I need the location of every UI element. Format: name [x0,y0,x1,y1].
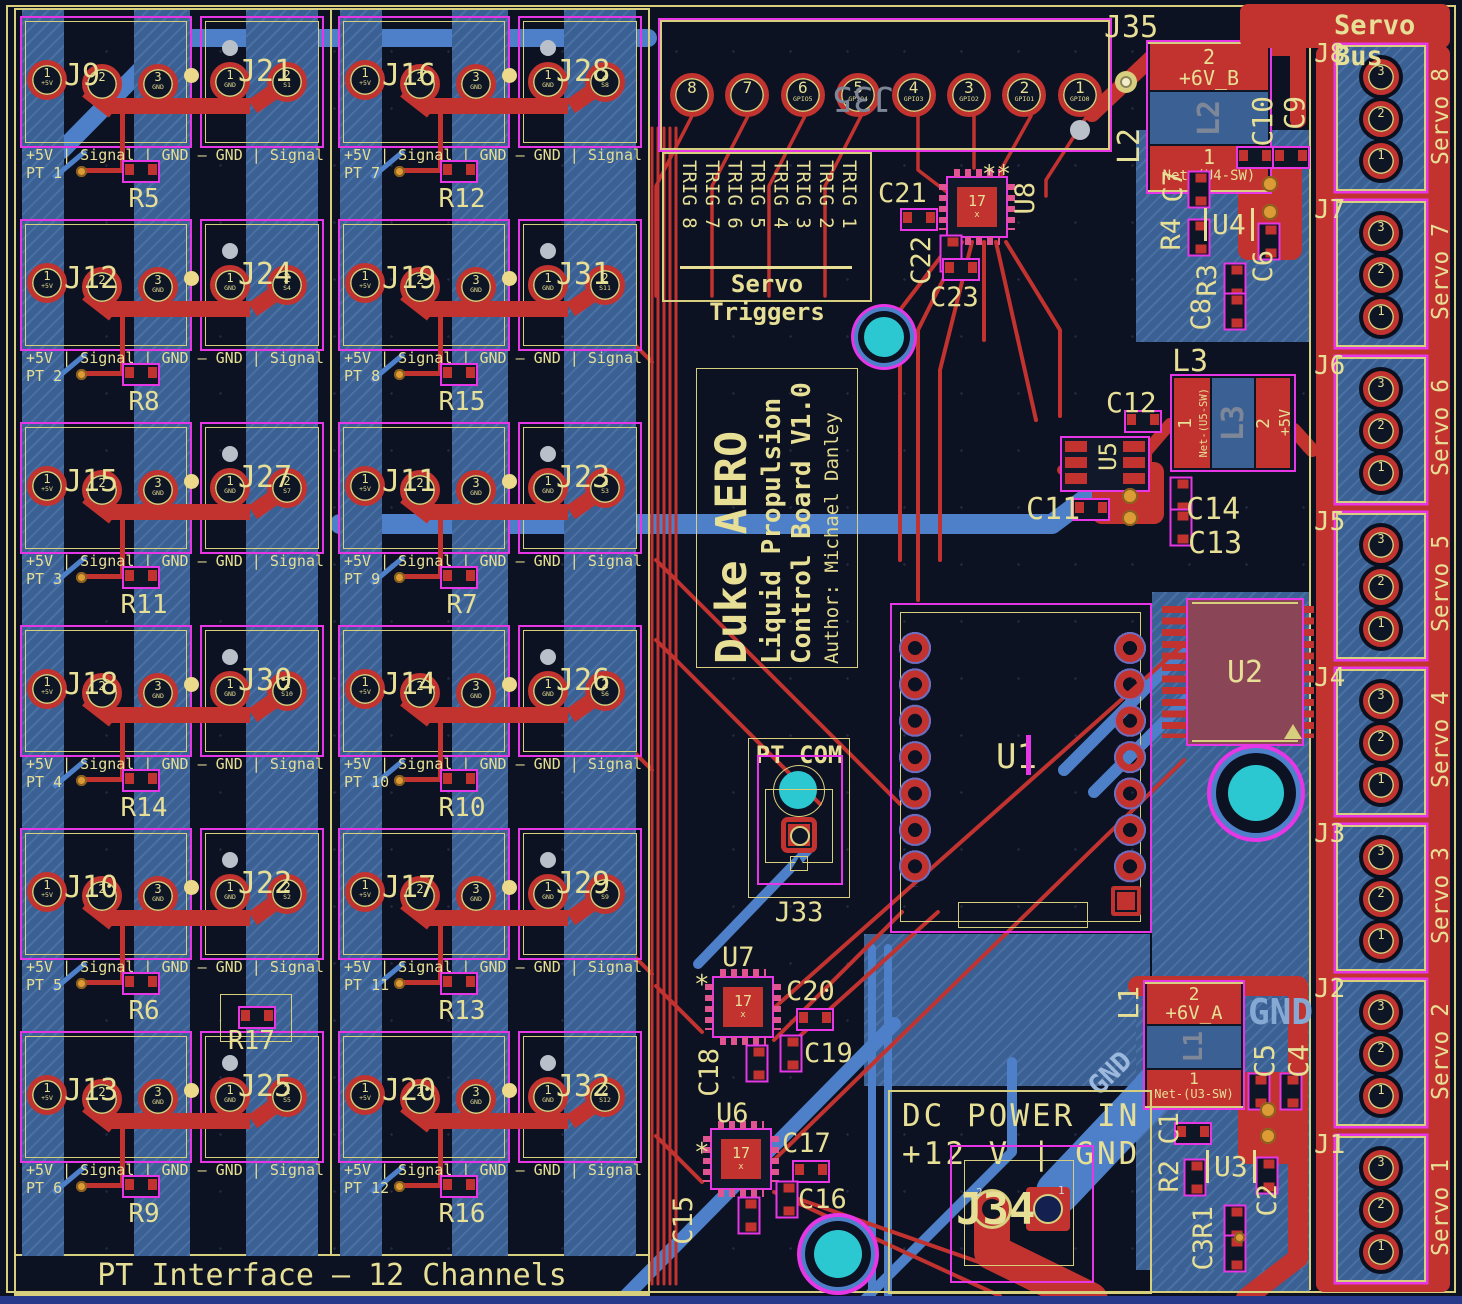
pad-signal[interactable]: 1 [1363,1234,1399,1270]
via [1122,488,1138,504]
pad-5v[interactable]: 1+5V [345,60,385,100]
via [1234,1232,1245,1243]
resistor-footprint[interactable] [122,1175,160,1198]
pad-gnd[interactable]: 3GND [456,673,496,713]
cap-ref[interactable]: C14 [1186,492,1240,527]
cap-ref[interactable]: C12 [1106,386,1157,419]
servo-connector[interactable]: J3 3 2 1 Servo 3 [1312,819,1462,969]
header-pad[interactable]: 3GPIO2 [947,73,991,117]
channel-label[interactable]: PT 12 [344,1179,389,1197]
trig-label[interactable]: TRIG 7 [701,160,723,264]
pad-5v[interactable]: 1+5V [27,872,67,912]
channel-label[interactable]: PT 8 [344,367,380,385]
pad-gnd[interactable]: 3 [1363,1150,1399,1186]
pad-signal[interactable]: 1 [1363,923,1399,959]
cap-ref[interactable]: C4 [1282,1044,1315,1078]
pad-gnd[interactable]: 3 [1363,371,1399,407]
cap-ref[interactable]: C22 [906,236,937,285]
resistor-footprint[interactable] [440,1175,478,1198]
connector-ref[interactable]: J15 [64,464,118,499]
connector-ref[interactable]: J12 [64,261,118,296]
pad-5v[interactable]: 1+5V [27,60,67,100]
servo-bus-title[interactable]: Servo Bus [1334,10,1462,72]
resistor-footprint[interactable] [440,566,478,589]
cap-footprint[interactable] [746,1045,769,1083]
trigger-header-connector[interactable]: 8 7 6GPIO5 5GPIO4 4GPIO3 3GPIO2 2GPIO1 1… [660,20,1110,150]
res-ref[interactable]: R1 [1188,1206,1219,1239]
silk-dot [540,40,556,56]
pt-channel-row[interactable]: 1+5V 2 3GND 1GND 2S10 J18 J30 +5V | Sign… [16,623,330,826]
pad-gnd[interactable]: 3GND [456,64,496,104]
channel-label[interactable]: PT 5 [26,976,62,994]
cap-ref[interactable]: C19 [804,1038,853,1069]
connector-body[interactable]: 3 2 1 [1336,1136,1426,1282]
servo-connector[interactable]: J5 3 2 1 Servo 5 [1312,507,1462,657]
pad-gnd[interactable]: 3 [1363,994,1399,1030]
resistor-footprint[interactable] [440,972,478,995]
pad-power[interactable]: 2 [1363,101,1399,137]
connector-ref[interactable]: J7 [1314,195,1345,225]
servo-label[interactable]: Servo 2 [1428,982,1454,1120]
servo-connector[interactable]: J1 3 2 1 Servo 1 [1312,1130,1462,1280]
resistor-ref[interactable]: R13 [420,996,504,1026]
resistor-ref[interactable]: R5 [102,184,186,214]
via-dot [502,880,517,895]
servo-triggers-title[interactable]: Servo Triggers [668,270,866,326]
chip-u7[interactable]: 17x [712,976,774,1038]
connector-ref[interactable]: J29 [556,866,610,901]
pt-channel-row[interactable]: 1+5V 2 3GND 1GND 2S3 J11 J23 +5V | Signa… [334,420,648,623]
board-title-block[interactable]: Duke AERO Liquid Propulsion Control Boar… [696,368,858,668]
silk-dot [222,446,238,462]
trace [84,168,124,173]
connector-body[interactable]: 3 2 1 [1336,357,1426,503]
trig-label[interactable]: TRIG 5 [747,160,769,264]
pinout-label[interactable]: +5V | Signal | GND – GND | Signal [344,958,642,976]
via [1122,510,1138,526]
pad-gnd[interactable]: 3GND [456,876,496,916]
pad-signal[interactable]: 1 [1363,455,1399,491]
connector-ref[interactable]: J16 [382,58,436,93]
pad-power[interactable]: 2 [1363,725,1399,761]
silk-dot [222,852,238,868]
channel-label[interactable]: PT 11 [344,976,389,994]
silk-dot [540,243,556,259]
connector-ref[interactable]: J31 [556,257,610,292]
trig-label[interactable]: TRIG 8 [678,160,700,264]
via [394,369,405,380]
inductor-ref[interactable]: L2 [1112,128,1147,164]
pad-gnd[interactable]: 3GND [138,267,178,307]
pt-channel-row[interactable]: 1+5V 2 3GND 1GND 2S1 J9 J21 +5V | Signal… [16,14,330,217]
resistor-footprint[interactable] [440,363,478,386]
silk-triangle [791,857,807,870]
pad-gnd[interactable]: 3GND [138,673,178,713]
resistor-footprint[interactable] [440,160,478,183]
silk-dot [540,446,556,462]
chip-ref: U5 [1094,442,1122,471]
via-dot [184,1083,199,1098]
cap-footprint[interactable] [780,1035,803,1073]
via-dot [184,271,199,286]
resistor-ref[interactable]: R6 [102,996,186,1026]
connector-ref[interactable]: J30 [238,663,292,698]
trig-label[interactable]: TRIG 6 [724,160,746,264]
connector-ref[interactable]: J3 [1314,819,1345,849]
servo-bus-region: Servo Bus J8 3 2 1 Servo 8 J7 3 2 1 Serv… [1312,0,1462,1304]
pt-com-connector[interactable]: PT COM J33 [748,738,850,898]
cap-ref[interactable]: C6 [1248,250,1279,283]
connector-ref[interactable]: J2 [1314,974,1345,1004]
pt-channel-row[interactable]: 1+5V 2 3GND 1GND 2S11 J19 J31 +5V | Sign… [334,217,648,420]
resistor-footprint[interactable] [122,769,160,792]
chip-ref[interactable]: U6 [716,1098,749,1129]
connector-ref[interactable]: J18 [64,667,118,702]
inductor-l3[interactable]: 1Net-(U5-SW) L3 2+5V [1170,374,1296,472]
connector-ref[interactable]: J20 [382,1073,436,1108]
pad-signal[interactable]: 1 [1363,767,1399,803]
pinout-label[interactable]: +5V | Signal | GND – GND | Signal [26,755,324,773]
cap-ref[interactable]: C16 [798,1184,847,1215]
pad-power[interactable]: 2 [1363,413,1399,449]
mounting-hole[interactable] [864,317,904,357]
cap-footprint[interactable] [900,208,938,231]
pad-gnd[interactable]: 3GND [138,64,178,104]
chip-u5[interactable]: U5 [1060,436,1150,492]
silk-notch [958,902,1088,928]
trig-label[interactable]: TRIG 2 [815,160,837,264]
trace [84,371,124,376]
channel-label[interactable]: PT 1 [26,164,62,182]
pad-power[interactable]: 2 [1363,257,1399,293]
pinout-label[interactable]: +5V | Signal | GND – GND | Signal [26,349,324,367]
trig-label[interactable]: TRIG 3 [792,160,814,264]
resistor-ref[interactable]: R8 [102,387,186,417]
pad-signal[interactable]: 1 [1363,1078,1399,1114]
chip-ref[interactable]: U4 [1204,208,1254,241]
pt-channel-row[interactable]: 1+5V 2 3GND 1GND 2S4 J12 J24 +5V | Signa… [16,217,330,420]
header-pad[interactable]: 4GPIO3 [892,73,936,117]
pad-gnd[interactable]: 3GND [138,1079,178,1119]
cap-ref[interactable]: C7 [1158,170,1189,203]
cap-ref[interactable]: C3 [1188,1238,1219,1271]
connector-ref[interactable]: J35 [1104,10,1158,45]
connector-ref[interactable]: J27 [238,460,292,495]
trig-label[interactable]: TRIG 1 [838,160,860,264]
connector-ref[interactable]: J8 [1314,39,1345,69]
pt-channel-row[interactable]: 1+5V 2 3GND 1GND 2S9 J17 J29 +5V | Signa… [334,826,648,1029]
cap-ref[interactable]: C5 [1248,1044,1281,1078]
cap-ref[interactable]: C23 [930,282,979,313]
pinout-label[interactable]: +5V | Signal | GND – GND | Signal [26,958,324,976]
via-dot [184,677,199,692]
channel-label[interactable]: PT 9 [344,570,380,588]
pinout-label[interactable]: +5V | Signal | GND – GND | Signal [26,552,324,570]
via-dot [502,677,517,692]
via [394,978,405,989]
cap-footprint[interactable] [1280,1073,1303,1111]
channel-label[interactable]: PT 3 [26,570,62,588]
pad-gnd[interactable]: 3 [1363,683,1399,719]
header-pad[interactable]: 2GPIO1 [1002,73,1046,117]
resistor-ref[interactable]: R15 [420,387,504,417]
connector-body[interactable]: 3 2 1 [1336,980,1426,1126]
pad-gnd[interactable]: 3 [1363,215,1399,251]
servo-label[interactable]: Servo 7 [1428,203,1454,341]
cap-footprint[interactable] [1272,146,1310,169]
cap-footprint[interactable] [942,258,980,281]
res-ref[interactable]: R4 [1156,218,1187,251]
pad-gnd[interactable]: 3GND [138,876,178,916]
res-ref[interactable]: R3 [1192,264,1223,297]
mounting-hole[interactable] [1228,765,1284,821]
connector-ref[interactable]: J6 [1314,351,1345,381]
pad-signal[interactable]: 1 [1363,611,1399,647]
cap-ref[interactable]: C8 [1186,298,1217,331]
pad-gnd[interactable]: 3GND [456,267,496,307]
cap-footprint[interactable] [1236,146,1274,169]
connector-ref[interactable]: J4 [1314,663,1345,693]
resistor-ref[interactable]: R11 [102,590,186,620]
resistor-footprint[interactable] [122,363,160,386]
pad-5v[interactable]: 1+5V [27,669,67,709]
chip-ref: U2 [1227,655,1263,690]
trace [402,1183,442,1188]
resistor-footprint[interactable] [122,160,160,183]
connector-ref[interactable]: J14 [382,667,436,702]
connector-ref[interactable]: J25 [238,1069,292,1104]
via [76,572,87,583]
pad-5v[interactable]: 1+5V [345,263,385,303]
connector-ref[interactable]: J24 [238,257,292,292]
pinout-label[interactable]: +5V | Signal | GND – GND | Signal [344,1161,642,1179]
resistor-ref[interactable]: R10 [420,793,504,823]
connector-ref[interactable]: J13 [64,1073,118,1108]
pad-5v[interactable]: 1+5V [27,466,67,506]
pad-signal[interactable]: 1 [1363,299,1399,335]
connector-body[interactable]: 3 2 1 [1336,825,1426,971]
cap-ref[interactable]: C20 [786,976,835,1007]
trigger-legend-box: TRIG 8TRIG 7TRIG 6TRIG 5TRIG 4TRIG 3TRIG… [662,152,872,302]
silk-marks: ** [982,160,1011,188]
channel-label[interactable]: PT 6 [26,1179,62,1197]
resistor-footprint[interactable] [440,769,478,792]
resistor-ref[interactable]: R7 [420,590,504,620]
mounting-hole[interactable] [814,1230,862,1278]
cap-footprint[interactable] [1188,171,1211,209]
connector-ref[interactable]: J19 [382,261,436,296]
via [1260,1128,1276,1144]
connector-ref[interactable]: J28 [556,54,610,89]
channel-label[interactable]: PT 10 [344,773,389,791]
gnd-zone-label[interactable]: GND [1248,992,1313,1033]
connector-ref[interactable]: J9 [64,58,100,93]
connector-ref[interactable]: J21 [238,54,292,89]
board-bottom-edge [0,1296,1462,1304]
servo-connector[interactable]: J7 3 2 1 Servo 7 [1312,195,1462,345]
cap-ref[interactable]: C17 [782,1128,831,1159]
connector-ref[interactable]: J23 [556,460,610,495]
servo-label[interactable]: Servo 3 [1428,827,1454,965]
cap-ref[interactable]: C11 [1026,492,1080,527]
inductor-l1[interactable]: 2+6V_A L1 1Net-(U3-SW) [1143,980,1245,1110]
resistor-ref[interactable]: R14 [102,793,186,823]
pad-signal[interactable]: 1 [1363,143,1399,179]
pinout-label[interactable]: +5V | Signal | GND – GND | Signal [26,1161,324,1179]
connector-ref[interactable]: J11 [382,464,436,499]
pad-gnd[interactable]: 3GND [138,470,178,510]
inductor-ref[interactable]: L3 [1172,344,1208,379]
connector-ref[interactable]: J26 [556,663,610,698]
channel-label[interactable]: PT 7 [344,164,380,182]
chip-ref[interactable]: U8 [1010,182,1041,222]
connector-body[interactable]: 3 2 1 [1336,669,1426,815]
trace [84,980,124,985]
trace [402,980,442,985]
board-author[interactable]: Author: Michael Danley [817,372,847,664]
connector-body[interactable]: 3 2 1 [1336,513,1426,659]
pt-column-divider [330,8,332,1254]
servo-label[interactable]: Servo 6 [1428,359,1454,497]
connector-ref[interactable]: J22 [238,866,292,901]
pad-5v[interactable]: 1+5V [27,1075,67,1115]
pt-channel-row[interactable]: 1+5V 2 3GND 1GND 2S12 J20 J32 +5V | Sign… [334,1029,648,1232]
cap-ref[interactable]: C21 [878,178,927,209]
trig-label[interactable]: TRIG 4 [769,160,791,264]
via-ring [1120,76,1132,88]
servo-label[interactable]: Servo 1 [1428,1138,1454,1276]
pad-gnd[interactable]: 3 [1363,839,1399,875]
via-dot [502,474,517,489]
silk-mark: * [694,970,710,1000]
pad-square[interactable] [1111,886,1141,916]
silk-rule [680,266,852,269]
board-subtitle[interactable]: Liquid Propulsion [757,372,787,664]
dc-power-title[interactable]: DC POWER IN [902,1098,1140,1134]
pad-gnd[interactable]: 3 [1363,527,1399,563]
silk-dot [222,1055,238,1071]
cap-footprint[interactable] [1224,293,1247,331]
connector-ref[interactable]: J10 [64,870,118,905]
via [76,369,87,380]
cap-ref[interactable]: C9 [1278,96,1311,130]
channel-label[interactable]: PT 2 [26,367,62,385]
connector-pad[interactable] [781,817,817,853]
resistor-ref[interactable]: R16 [420,1199,504,1229]
pt-channel-row[interactable]: 1+5V 2 3GND 1GND 2S6 J14 J26 +5V | Signa… [334,623,648,826]
pad-5v[interactable]: 1+5V [345,466,385,506]
pt-channel-row[interactable]: 1+5V 2 3GND 1GND 2S8 J16 J28 +5V | Signa… [334,14,648,217]
via [394,572,405,583]
silk-triangle [1284,724,1302,739]
pinout-label[interactable]: +5V | Signal | GND – GND | Signal [344,755,642,773]
pad-power[interactable]: 2 [1363,881,1399,917]
pt-channel-row[interactable]: 1+5V 2 3GND 1GND 2S5 J13 J25 +5V | Signa… [16,1029,330,1232]
header-pad[interactable]: 1GPIO0 [1058,73,1102,117]
silk-dot [222,40,238,56]
pt-interface-title[interactable]: PT Interface — 12 Channels [14,1254,650,1296]
pcb-canvas: PT Interface — 12 Channels 1+5V 2 3GND 1… [0,0,1462,1304]
pt-channel-row[interactable]: 1+5V 2 3GND 1GND 2S7 J15 J27 +5V | Signa… [16,420,330,623]
pinout-label[interactable]: +5V | Signal | GND – GND | Signal [344,349,642,367]
cap-footprint[interactable] [738,1197,761,1235]
inductor-ref[interactable]: L1 [1112,986,1145,1020]
connector-ref[interactable]: J1 [1314,1130,1345,1160]
servo-connector[interactable]: J4 3 2 1 Servo 4 [1312,663,1462,813]
trace [402,371,442,376]
cap-ref[interactable]: C15 [668,1196,699,1245]
pinout-label[interactable]: +5V | Signal | GND – GND | Signal [344,146,642,164]
silk-dot [222,243,238,259]
via [1262,176,1278,192]
servo-label[interactable]: Servo 4 [1428,671,1454,809]
pad-5v[interactable]: 1+5V [345,1075,385,1115]
pad-power[interactable]: 2 [1363,569,1399,605]
channel-label[interactable]: PT 4 [26,773,62,791]
res-ref[interactable]: R2 [1154,1160,1185,1193]
cap-ref[interactable]: C1 [1154,1112,1185,1145]
header-pad[interactable]: 8 [670,73,714,117]
resistor-footprint[interactable] [122,566,160,589]
resistor-ref[interactable]: R12 [420,184,504,214]
trace [402,574,442,579]
resistor-footprint[interactable] [122,972,160,995]
header-pad[interactable]: 7 [725,73,769,117]
cap-ref[interactable]: C18 [694,1048,725,1097]
connector-ref[interactable]: J34 [956,1184,1035,1235]
pad-5v[interactable]: 1+5V [27,263,67,303]
chip-ref[interactable]: U3 [1206,1150,1256,1183]
connector-ref[interactable]: J32 [556,1069,610,1104]
chip-ref[interactable]: U7 [722,942,755,973]
connector-ref[interactable]: J5 [1314,507,1345,537]
connector-body[interactable]: 3 2 1 [1336,201,1426,347]
resistor-ref[interactable]: R9 [102,1199,186,1229]
pad-power[interactable]: 2 [1363,1192,1399,1228]
header-pad[interactable]: 6GPIO5 [781,73,825,117]
pad-gnd[interactable]: 3GND [456,1079,496,1119]
via [394,166,405,177]
board-subtitle2[interactable]: Control Board V1.0 [787,372,817,664]
cap-footprint[interactable] [776,1181,799,1219]
servo-connector[interactable]: J6 3 2 1 Servo 6 [1312,351,1462,501]
silk-mark: * [694,1138,710,1168]
pinout-label[interactable]: +5V | Signal | GND – GND | Signal [26,146,324,164]
servo-label[interactable]: Servo 5 [1428,515,1454,653]
cap-ref[interactable]: C13 [1188,526,1242,561]
resistor-ref[interactable]: R17 [228,1026,275,1056]
connector-ref[interactable]: J33 [749,897,849,928]
pad-power[interactable]: 2 [1363,1036,1399,1072]
servo-connector[interactable]: J2 3 2 1 Servo 2 [1312,974,1462,1124]
cap-footprint[interactable] [796,1008,834,1031]
via [1260,1102,1276,1118]
cap-ref[interactable]: C10 [1246,96,1279,147]
via [76,775,87,786]
res-footprint[interactable] [1184,1159,1207,1197]
connector-ref[interactable]: J17 [382,870,436,905]
chip-u6[interactable]: 17x [710,1128,772,1190]
via-dot [184,68,199,83]
module-u1[interactable]: U1 [890,603,1152,933]
pad-5v[interactable]: 1+5V [345,872,385,912]
pad-5v[interactable]: 1+5V [345,669,385,709]
cap-ref[interactable]: C2 [1252,1184,1283,1217]
board-title[interactable]: Duke AERO [707,372,757,664]
pinout-label[interactable]: +5V | Signal | GND – GND | Signal [344,552,642,570]
pad-gnd[interactable]: 3GND [456,470,496,510]
dc-power-connector[interactable]: DC POWER IN +12 V | GND 2 1 J34 [888,1090,1152,1294]
